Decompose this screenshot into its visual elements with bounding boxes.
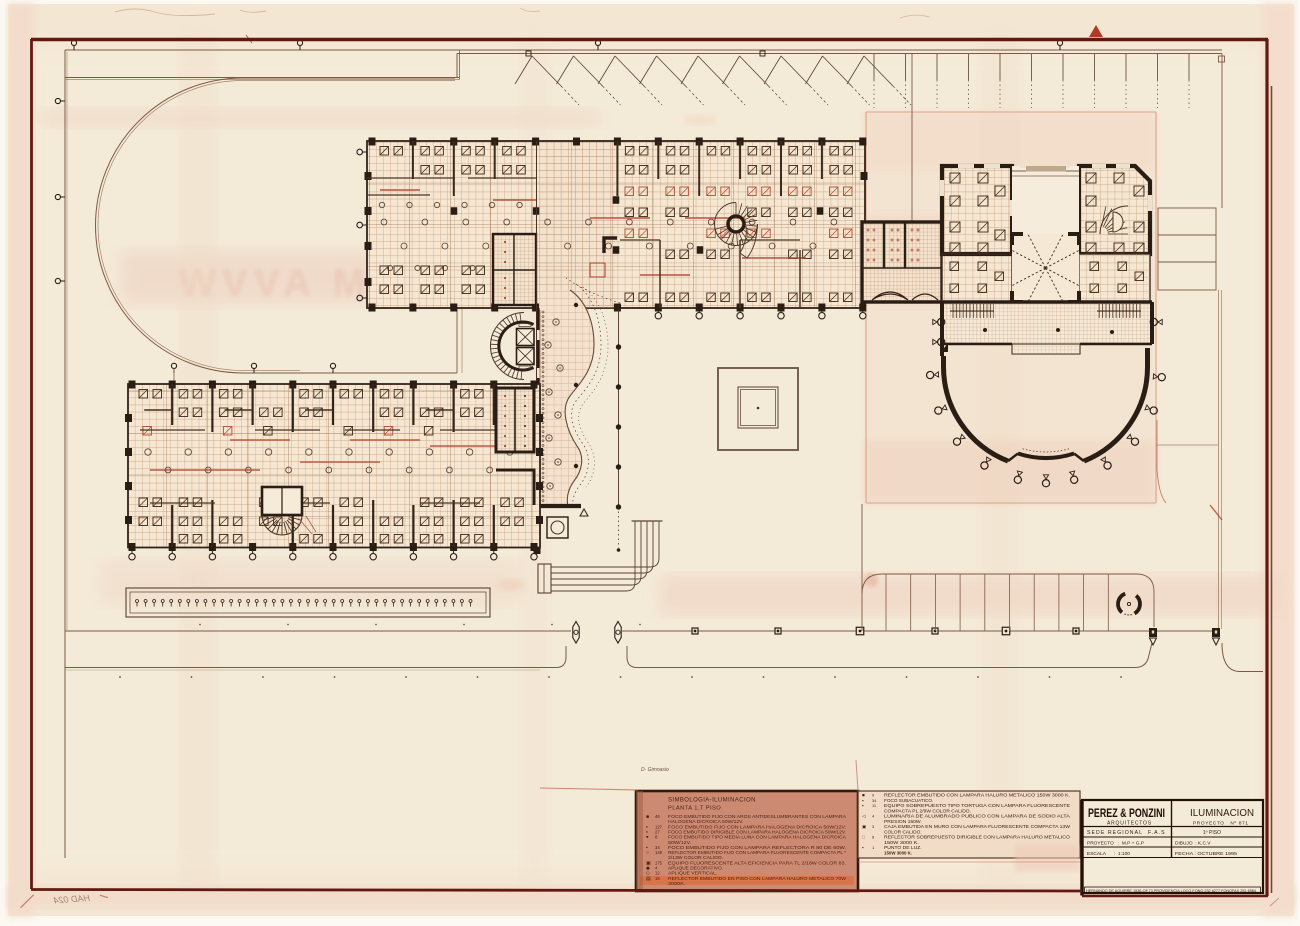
- svg-text:▣: ▣: [862, 824, 867, 829]
- svg-text:3000K.: 3000K.: [668, 881, 685, 886]
- svg-text:PROYECTO Nº 871: PROYECTO Nº 871: [1193, 821, 1249, 827]
- svg-text:CAJA EMBUTIDA EN MURO CON LAMP: CAJA EMBUTIDA EN MURO CON LAMPARA FLUORE…: [884, 824, 1070, 829]
- svg-text:◁: ◁: [862, 814, 866, 819]
- svg-text:PEREZ & PONZINI: PEREZ & PONZINI: [1088, 808, 1165, 820]
- svg-text:PROYECTO : M.P + G.P: PROYECTO : M.P + G.P: [1087, 841, 1144, 847]
- svg-text:■: ■: [862, 793, 865, 798]
- svg-text:148: 148: [655, 850, 663, 855]
- svg-text:PUNTO DE LUZ.: PUNTO DE LUZ.: [884, 845, 922, 850]
- svg-text:HERNANDO DE AGUIRRE 1536-OF.73: HERNANDO DE AGUIRRE 1536-OF.73 PROVIDENC…: [1086, 889, 1256, 893]
- svg-text:ILUMINACION: ILUMINACION: [1190, 808, 1254, 819]
- svg-text:SIMBOLOGIA-ILUMINACION: SIMBOLOGIA-ILUMINACION: [668, 798, 756, 804]
- svg-text:D· Gimnasio: D· Gimnasio: [641, 767, 669, 773]
- svg-text:ESCALA : 1:100: ESCALA : 1:100: [1087, 851, 1130, 857]
- svg-text:SEDE REGIONAL F.A.S: SEDE REGIONAL F.A.S: [1087, 830, 1166, 836]
- svg-text:ARQUITECTOS: ARQUITECTOS: [1107, 821, 1152, 827]
- svg-text:○: ○: [646, 850, 649, 856]
- svg-text:FOCO SUBACUATICO.: FOCO SUBACUATICO.: [884, 798, 933, 803]
- svg-text:PLANTA 1.T PISO: PLANTA 1.T PISO: [668, 806, 721, 812]
- svg-text:COLOR CALIDO.: COLOR CALIDO.: [884, 829, 922, 834]
- svg-text:150W 3000 K.: 150W 3000 K.: [884, 850, 912, 855]
- svg-text:PRESION 150W.: PRESION 150W.: [884, 819, 922, 824]
- svg-text:DIBUJO : K.C.V: DIBUJO : K.C.V: [1175, 841, 1211, 847]
- svg-text:□: □: [862, 835, 865, 840]
- svg-text:FOCO EMBUTIDO TIPO MEDIA LUNA: FOCO EMBUTIDO TIPO MEDIA LUNA CON LAMPAR…: [668, 835, 846, 840]
- svg-text:LUMINARIA DE ALUMBRADO PUBLICO: LUMINARIA DE ALUMBRADO PUBLICO CON LAMPA…: [884, 814, 1070, 819]
- svg-text:1º PISO: 1º PISO: [1203, 830, 1221, 836]
- svg-text:■: ■: [646, 814, 649, 820]
- svg-text:COMPACTA PL 2/9W COLOR CALIDO.: COMPACTA PL 2/9W COLOR CALIDO.: [884, 808, 971, 813]
- svg-text:REFLECTOR SOBREPUESTO DIRIGIBL: REFLECTOR SOBREPUESTO DIRIGIBLE CON LAMP…: [884, 835, 1071, 840]
- svg-text:REFLECTOR EMBUTIDO EN PISO CON: REFLECTOR EMBUTIDO EN PISO CON LAMPARA H…: [668, 876, 847, 881]
- svg-text:REFLECTOR EMBUTIDO CON LAMPARA: REFLECTOR EMBUTIDO CON LAMPARA HALURO ME…: [884, 793, 1070, 798]
- svg-text:▤: ▤: [646, 876, 651, 882]
- svg-text:46: 46: [655, 814, 660, 819]
- svg-text:EQUIPO SOBREPUESTO TIPO TORTUG: EQUIPO SOBREPUESTO TIPO TORTUGA CON LAMP…: [884, 803, 1070, 808]
- svg-text:18: 18: [655, 876, 660, 881]
- svg-text:FECHA : OCTUBRE 1995: FECHA : OCTUBRE 1995: [1175, 851, 1237, 857]
- svg-text:34: 34: [872, 798, 877, 803]
- svg-text:150W 3000 K.: 150W 3000 K.: [884, 840, 919, 845]
